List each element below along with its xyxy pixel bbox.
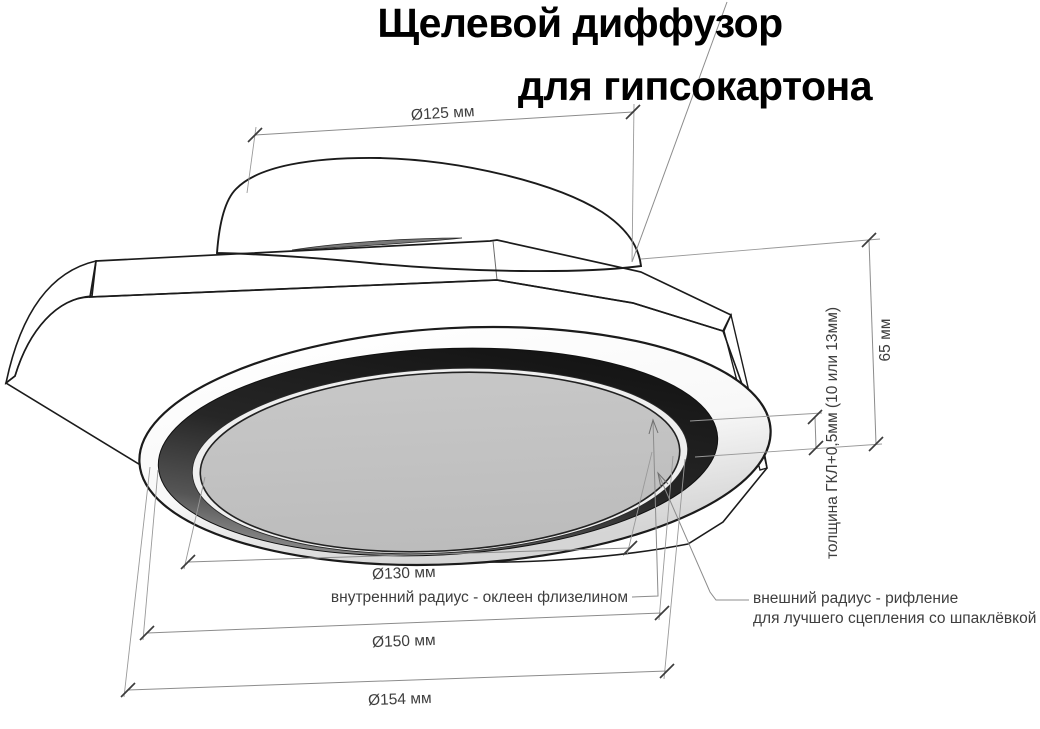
drawing-title: Щелевой диффузор для гипсокартона [377,0,873,109]
label-outer-radius-line2: для лучшего сцепления со шпаклёвкой [753,610,1036,627]
label-plate-thickness: толщина ГКЛ+0,5мм (10 или 13мм) [824,307,841,559]
title-line1: Щелевой диффузор [377,0,782,46]
label-height: 65 мм [877,319,894,362]
label-outer-radius-line1: внешний радиус - рифление [753,590,958,607]
label-overall-diameter: Ø154 мм [368,690,432,709]
label-outer-diameter: Ø150 мм [372,632,436,651]
plate-edge-seam [493,241,497,280]
technical-drawing-page: Ø125 мм 65 мм толщина ГКЛ+0,5мм (10 или … [0,0,1040,729]
duct-collar [217,158,641,271]
label-duct-diameter: Ø125 мм [410,103,474,124]
diffuser-3d-view [6,158,777,580]
technical-drawing-canvas: Ø125 мм 65 мм толщина ГКЛ+0,5мм (10 или … [0,0,1040,729]
label-inner-diameter: Ø130 мм [372,564,436,583]
title-line2: для гипсокартона [518,63,874,109]
label-inner-radius: внутренний радиус - оклеен флизелином [331,589,628,606]
